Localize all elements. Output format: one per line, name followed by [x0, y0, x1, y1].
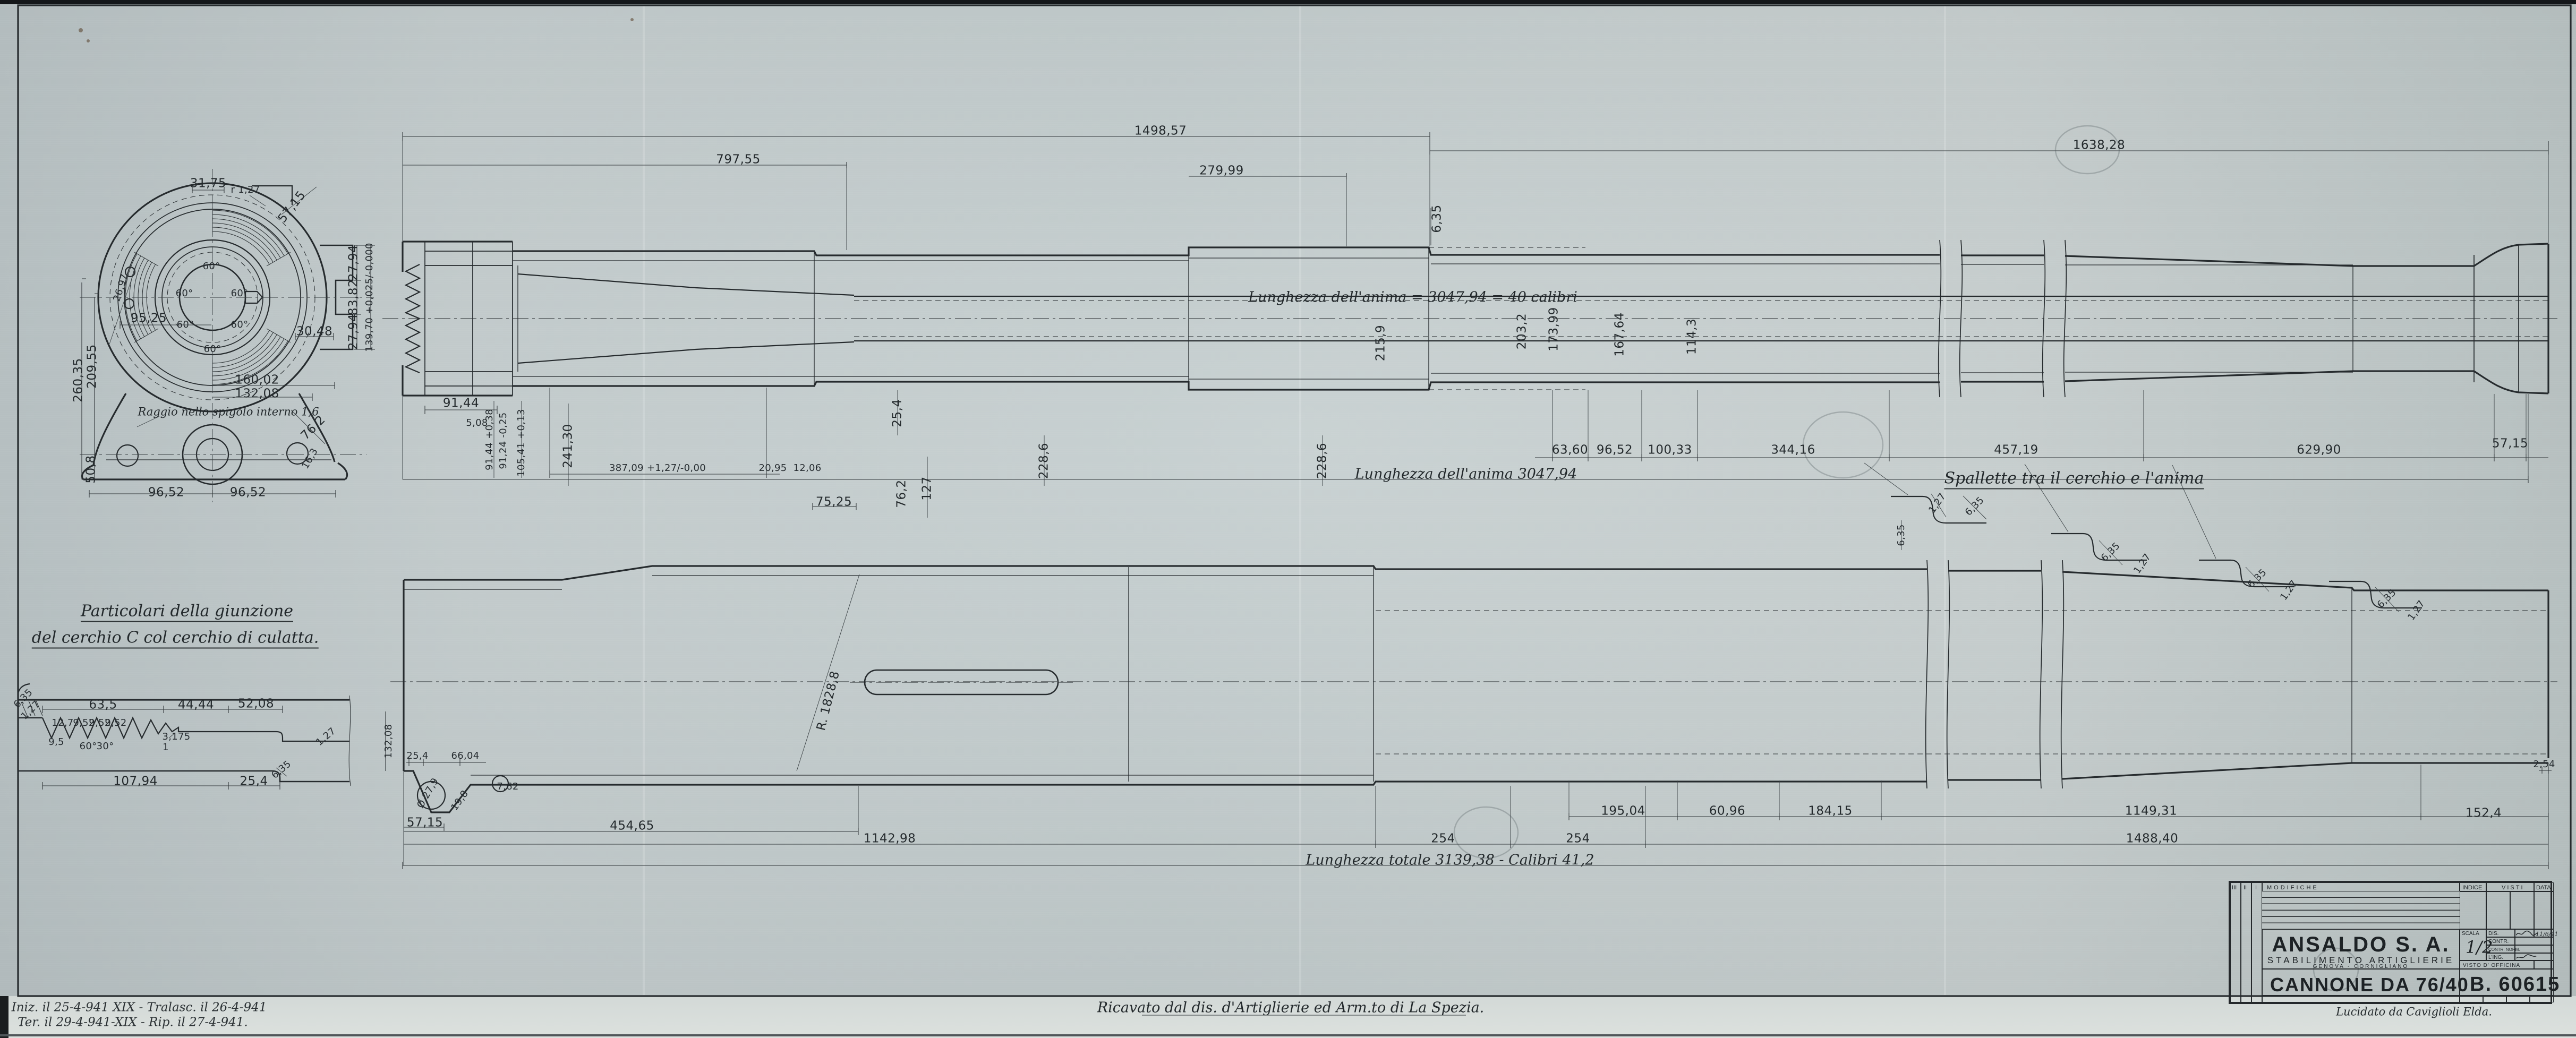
dim-label: 60° — [80, 742, 97, 751]
rev-col-3 — [2230, 882, 2241, 1002]
ing-signature-cell — [2515, 953, 2554, 960]
log-note-line1: Iniz. il 25-4-941 XIX - Tralasc. il 26-4… — [12, 1002, 267, 1014]
dim-label: 66,04 — [451, 751, 479, 761]
dim-label: 91,24 -0,25 — [499, 412, 508, 469]
dim-label: 457,19 — [1994, 444, 2038, 457]
dim-label: 1638,28 — [2073, 140, 2126, 152]
drawing-number: B. 60615 — [2470, 973, 2560, 996]
dim-label: Lunghezza totale 3139,38 - Calibri 41,2 — [1306, 853, 1594, 868]
workshop-date-cell — [2534, 960, 2554, 969]
contrnorm-value-cell — [2515, 945, 2554, 953]
dim-label: 44,44 — [178, 699, 214, 711]
contr-label: CONTR. — [2488, 939, 2509, 945]
dim-label: 57,15 — [2492, 438, 2528, 450]
company-name: ANSALDO S. A. — [2263, 933, 2459, 957]
dim-label: 1149,31 — [2125, 805, 2178, 818]
indice-rows — [2460, 891, 2486, 929]
workshop-label: VISTO D' OFFICINA — [2463, 963, 2520, 968]
dim-label: 60° — [231, 320, 249, 330]
dim-label: 83,82 — [348, 279, 360, 315]
dim-label: 96,52 — [1597, 444, 1633, 457]
dim-label: 344,16 — [1771, 444, 1815, 457]
dim-label: 25,4 — [406, 751, 428, 761]
dim-label: 6,35 — [1431, 204, 1444, 233]
dim-label: 114,3 — [1686, 319, 1699, 355]
ing-label-cell: L'ING. — [2486, 953, 2515, 960]
dim-label: 60° — [177, 320, 194, 330]
dim-label: 260,35 — [73, 358, 85, 402]
bottom-strip-c2 — [2483, 996, 2506, 1002]
dim-label: 254 — [1566, 833, 1590, 845]
number-cell: B. 60615 — [2460, 969, 2554, 996]
visti-header-cell: VISTI — [2486, 882, 2534, 891]
sheet-frame — [18, 5, 2571, 996]
dim-label: 241,30 — [562, 424, 575, 468]
visti-rows-b — [2510, 891, 2534, 929]
dim-label: 228,6 — [1317, 443, 1329, 479]
dim-label: 100,33 — [1648, 444, 1692, 457]
dim-label: 25,4 — [892, 399, 904, 427]
ing-label: L'ING. — [2488, 955, 2503, 960]
dim-label: 228,6 — [1038, 443, 1051, 479]
dim-label: 57,15 — [407, 817, 443, 829]
dim-label: 96,52 — [230, 487, 266, 499]
dim-label: 60° — [204, 345, 221, 354]
dim-label: 60° — [203, 262, 220, 271]
company-cell: ANSALDO S. A. STABILIMENTO ARTIGLIERIE G… — [2262, 929, 2460, 969]
dim-label: Particolari della giunzione — [81, 604, 293, 622]
modification-rows — [2262, 891, 2460, 929]
dim-label: 91,44 — [443, 398, 479, 410]
tube-profile-view — [390, 560, 2557, 812]
bottom-strip-c4 — [2530, 996, 2554, 1002]
dim-label: 1488,40 — [2126, 833, 2179, 845]
dim-label: 105,41 +0,13 — [517, 409, 526, 476]
dim-label: 107,94 — [113, 776, 157, 788]
dim-label: 195,04 — [1601, 805, 1645, 818]
dim-label: 31,75 — [190, 178, 226, 190]
dim-label: 50,8 — [86, 455, 98, 483]
dim-label: 9,52 — [105, 718, 126, 728]
barrel-section-view — [382, 240, 2557, 397]
rev-col-2-label: II — [2244, 885, 2247, 891]
visti-header: VISTI — [2502, 885, 2524, 891]
dis-label-cell: DIS. — [2486, 929, 2515, 937]
dim-label: 20,95 — [758, 464, 787, 473]
data-rows — [2534, 891, 2554, 929]
dim-label: 91,44 +0,38 — [485, 409, 494, 470]
rev-col-1-label: I — [2255, 885, 2257, 891]
dim-label: 25,4 — [240, 776, 268, 788]
dim-label: 30° — [97, 742, 114, 751]
dim-label: Lunghezza dell'anima 3047,94 — [1355, 467, 1577, 482]
rev-col-2 — [2241, 882, 2251, 1002]
dim-label: 279,99 — [1199, 165, 1243, 177]
traced-by-note: Lucidato da Caviglioli Elda. — [2336, 1007, 2492, 1018]
source-note: Ricavato dal dis. d'Artiglierie ed Arm.t… — [1097, 1001, 1485, 1015]
dim-label: 167,64 — [1614, 312, 1626, 356]
rev-col-3-label: III — [2232, 885, 2237, 891]
dim-label: 6,35 — [1897, 524, 1906, 546]
dim-label: 2,54 — [2533, 760, 2555, 769]
dim-label: 63,60 — [1552, 444, 1588, 457]
scale-cell: SCALA 1/2 — [2460, 929, 2486, 960]
dim-label: 1498,57 — [1135, 125, 1187, 138]
bottom-strip-c1 — [2460, 996, 2483, 1002]
dim-label: 30,48 — [296, 326, 332, 338]
contr-value-cell — [2515, 937, 2554, 945]
dim-label: 127 — [922, 476, 934, 500]
dim-label: 215,9 — [1375, 325, 1387, 361]
dis-signature-cell — [2515, 929, 2534, 937]
dim-label: 60° — [176, 289, 193, 298]
dim-label: 27,94 — [348, 245, 360, 281]
rev-col-1 — [2251, 882, 2262, 1002]
dim-label: r 1,27 — [231, 185, 260, 195]
drawing-subject: CANNONE DA 76/40 — [2270, 974, 2469, 996]
dim-label: 7,62 — [497, 782, 518, 792]
bottom-strip-left — [2262, 996, 2460, 1002]
dim-label: 3,175 — [162, 732, 190, 742]
subject-cell: CANNONE DA 76/40 — [2262, 969, 2460, 996]
dim-label: Raggio nello spigolo interno 1,6 — [138, 407, 319, 418]
dim-label: 387,09 +1,27/-0,00 — [609, 464, 706, 473]
contrnorm-label-cell: CONTR. NORM. — [2486, 945, 2515, 953]
dim-label: 184,15 — [1808, 805, 1852, 818]
dim-label: 1 — [163, 743, 169, 752]
dim-label: 27,94 — [348, 314, 360, 350]
dim-label: 132,08 — [384, 724, 394, 759]
dim-label: 132,08 — [235, 388, 279, 400]
blueprint-sheet: 1498,571638,28797,55279,996,3591,445,089… — [0, 0, 2576, 1038]
dim-label: Spallette tra il cerchio e l'anima — [1944, 471, 2204, 490]
dim-label: 1142,98 — [864, 833, 916, 845]
workshop-cell: VISTO D' OFFICINA — [2460, 960, 2534, 969]
dim-label: 203,2 — [1516, 313, 1529, 349]
indice-header-cell: INDICE — [2460, 882, 2486, 891]
dis-date-cell: 11/6/41 — [2534, 929, 2554, 937]
dis-label: DIS. — [2488, 931, 2498, 937]
dim-label: 96,52 — [148, 487, 184, 499]
dim-label: 12,06 — [793, 464, 821, 473]
indice-header: INDICE — [2462, 885, 2482, 891]
dim-label: 9,5 — [48, 737, 64, 747]
dim-label: 152,4 — [2466, 808, 2502, 820]
dim-label: 173,99 — [1548, 307, 1560, 351]
contr-label-cell: CONTR. — [2486, 937, 2515, 945]
dim-label: Lunghezza dell'anima = 3047,94 = 40 cali… — [1248, 290, 1577, 305]
modifiche-header: MODIFICHE — [2267, 885, 2319, 891]
dim-label: del cerchio C col cerchio di culatta. — [32, 630, 319, 649]
data-header-cell: DATA — [2534, 882, 2554, 891]
dim-label: 209,55 — [87, 344, 99, 388]
dim-label: 254 — [1431, 833, 1455, 845]
dim-label: 797,55 — [716, 154, 760, 166]
dim-label: 63,5 — [89, 699, 117, 711]
dim-label: 629,90 — [2297, 444, 2341, 457]
dim-label: 60,96 — [1709, 805, 1745, 818]
visti-rows-a — [2486, 891, 2510, 929]
dim-label: 52,08 — [238, 698, 274, 710]
bottom-strip-c3 — [2506, 996, 2530, 1002]
dim-label: 454,65 — [610, 820, 654, 833]
log-note-line2: Ter. il 29-4-941-XIX - Rip. il 27-4-941. — [18, 1017, 248, 1029]
dim-label: 95,25 — [131, 313, 167, 325]
drawing-linework — [0, 0, 2576, 1038]
dim-label: 75,25 — [816, 496, 852, 509]
dim-label: 12,7 — [52, 718, 73, 728]
data-header: DATA — [2536, 885, 2551, 891]
title-block: III II I MODIFICHE INDICE VISTI DATA ANS… — [2229, 881, 2552, 1004]
modifiche-header-cell: MODIFICHE — [2262, 882, 2460, 891]
dim-label: 160,02 — [235, 374, 279, 387]
scale-label: SCALA — [2462, 931, 2479, 937]
dim-label: 76,2 — [896, 479, 908, 508]
dim-label: 139,70 +0,025/-0,000 — [365, 243, 374, 351]
dim-label: 60° — [231, 289, 249, 298]
